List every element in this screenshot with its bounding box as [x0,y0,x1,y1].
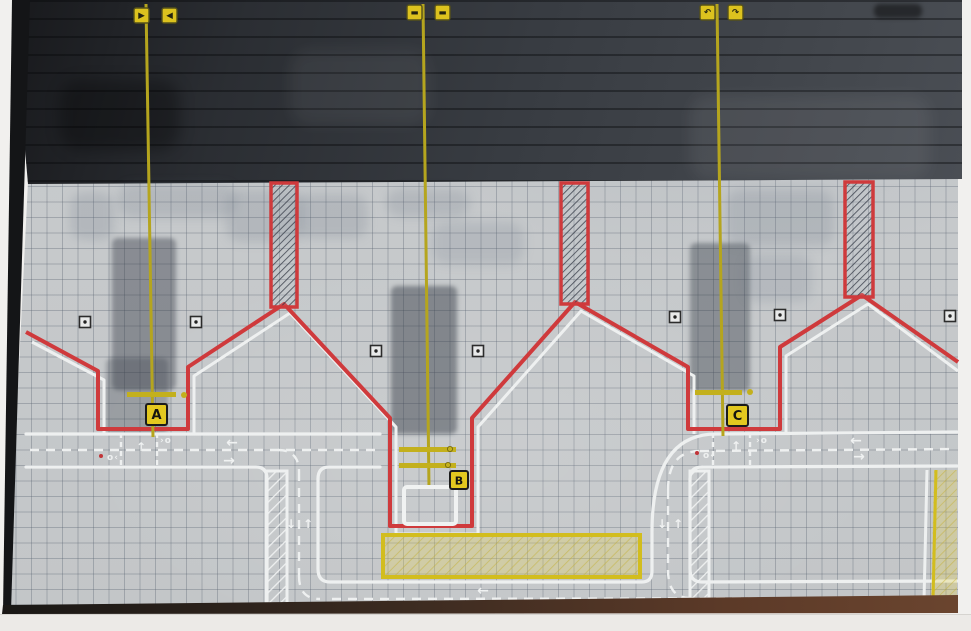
photo-of-apron-diagram: A B C ▶ ◀ ▬ ▬ [0,0,971,631]
arrow-right: → [853,449,865,465]
sign-glyph: ↷ [732,8,740,18]
stop-bars [127,389,753,468]
junction-up-arrow: ↑ [136,440,146,454]
taxiway-sign-a-right: ◀ [162,8,177,23]
kerb-hatch-left [266,471,287,610]
arrow-down: ↓ [657,517,667,531]
junction-red-dot [695,451,699,455]
sign-glyph: ↶ [704,8,712,18]
stand-label-c: C [727,405,748,426]
fiducial-marker [191,317,202,328]
sign-glyph: ◀ [166,11,173,21]
taxiway-sign-b-right: ▬ [435,5,450,20]
junction-dot-chevron: o‹ [107,453,119,463]
service-road-edges [26,432,957,610]
fiducial-marker [473,346,484,357]
junction-chevron-dot: ›o [160,436,172,446]
sign-glyph: ▶ [138,11,145,21]
junction-chevron-dot: ›o [756,436,768,446]
arrow-down: ↓ [286,517,296,531]
stand-label-c-text: C [733,409,743,424]
stand-label-a: A [146,404,167,425]
red-hatched-strips [271,182,873,307]
junction-up-arrow: ↑ [731,439,741,453]
arrow-left: ← [226,435,238,451]
junction-dot-chevron: o‹ [703,451,715,461]
fiducial-marker [670,312,681,323]
arrow-up: ↑ [303,517,313,531]
taxi-lead-in-lines [146,4,723,488]
taxiway-sign-a-left: ▶ [134,8,149,23]
taxiway-signs: ▶ ◀ ▬ ▬ ↶ ↷ [134,5,743,23]
taxiway-sign-c-right: ↷ [728,5,743,20]
taxi-line-c [717,4,723,436]
arrow-left: ← [477,583,489,599]
stand-label-b: B [450,471,468,489]
hatched-strip-middle [561,183,588,304]
stand-label-b-text: B [455,475,463,488]
boundary-white-line [32,304,958,534]
hatched-strip-right [845,182,873,297]
taxiway-sign-b-left: ▬ [407,5,422,20]
fiducial-marker [80,317,91,328]
taxi-line-b [423,4,429,488]
arrow-up: ↑ [673,517,683,531]
sign-glyph: ▬ [410,8,418,18]
taxiway-sign-c-left: ↶ [700,5,715,20]
arrow-left: ← [850,433,862,449]
kerb-hatch-right [690,471,709,610]
fiducial-marker [775,310,786,321]
stand-label-a-text: A [151,408,161,423]
hatched-strip-left [271,183,297,307]
fiducial-marker [945,311,956,322]
fiducial-marker [371,346,382,357]
apron-diagram-linework: A B C ▶ ◀ ▬ ▬ [0,0,971,631]
junction-red-dot [99,454,103,458]
photo-bottom-margin [0,614,971,631]
arrow-right: → [223,453,235,469]
taxi-line-a [146,4,153,437]
sign-glyph: ▬ [438,8,446,18]
yellow-hatched-area [383,535,640,577]
white-stop-box [404,487,456,524]
